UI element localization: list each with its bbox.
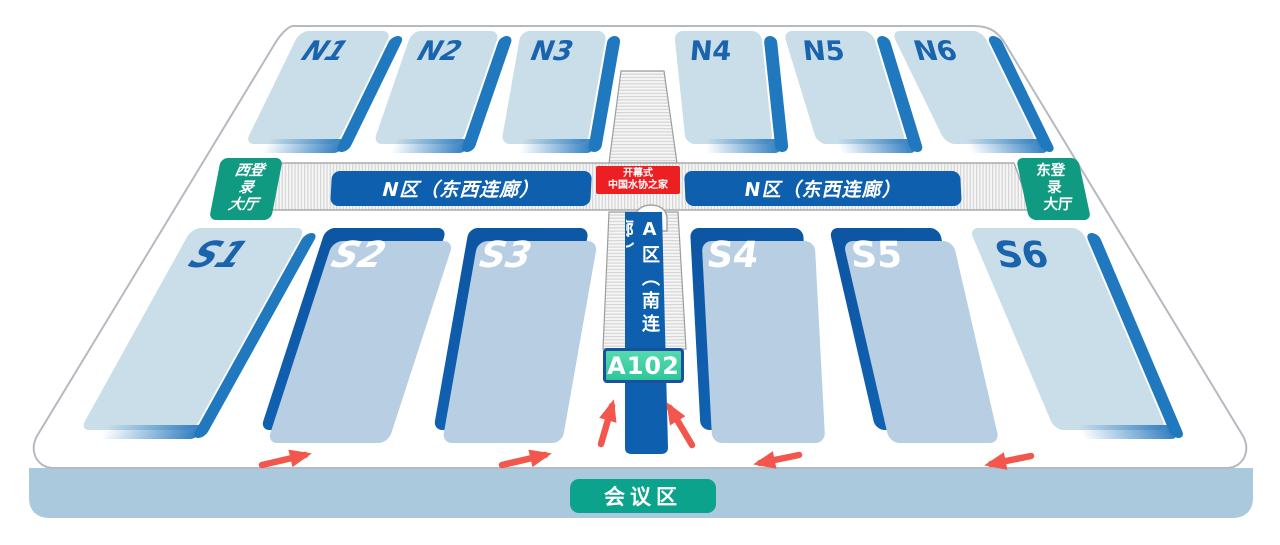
- exhibition-floor-map: N1 N2 N3 N4 N5 N6 S1 S2 S3 S4 S5 S6 N区（东…: [0, 0, 1280, 545]
- opening-ceremony-banner: 开幕式 中国水协之家: [596, 166, 680, 194]
- banner-line1: 开幕式: [623, 168, 653, 179]
- hall-n2-label: N2: [400, 31, 500, 65]
- east-entrance-line3: 大厅: [1024, 197, 1090, 214]
- corridor-label-south: A区（南连廊）: [626, 219, 662, 349]
- hall-n5-label: N5: [783, 31, 882, 65]
- hall-n3: N3: [501, 31, 607, 144]
- east-registration-hall: 东登 录 大厅: [1016, 158, 1091, 220]
- hall-s4: S4: [690, 228, 814, 430]
- hall-s6-label: S6: [969, 228, 1101, 274]
- hall-n4-label: N4: [674, 31, 765, 65]
- hall-s1-label: S1: [167, 228, 306, 274]
- hall-s5-label: S5: [829, 228, 950, 274]
- hall-n1-label: N1: [283, 31, 392, 65]
- hall-s3-label: S3: [461, 228, 589, 274]
- hall-n3-label: N3: [515, 31, 607, 65]
- corridor-label-east-wing: N区（东西连廊）: [684, 171, 962, 206]
- corridor-label-west-wing: N区（东西连廊）: [330, 171, 592, 206]
- hall-n4: N4: [674, 31, 773, 144]
- west-registration-hall: 西登 录 大厅: [209, 158, 283, 220]
- hall-s4-label: S4: [690, 228, 805, 274]
- east-entrance-line1: 东登: [1017, 163, 1083, 180]
- west-entrance-line3: 大厅: [210, 197, 275, 214]
- booth-badge-a102: A102: [603, 348, 684, 383]
- banner-line2: 中国水协之家: [608, 180, 668, 191]
- west-entrance-line2: 录: [213, 180, 278, 197]
- conference-area-label: 会议区: [570, 479, 716, 513]
- west-entrance-line1: 西登: [217, 163, 282, 180]
- hall-n6-label: N6: [891, 31, 999, 65]
- east-entrance-line2: 录: [1021, 180, 1087, 197]
- hall-s2-label: S2: [311, 228, 447, 274]
